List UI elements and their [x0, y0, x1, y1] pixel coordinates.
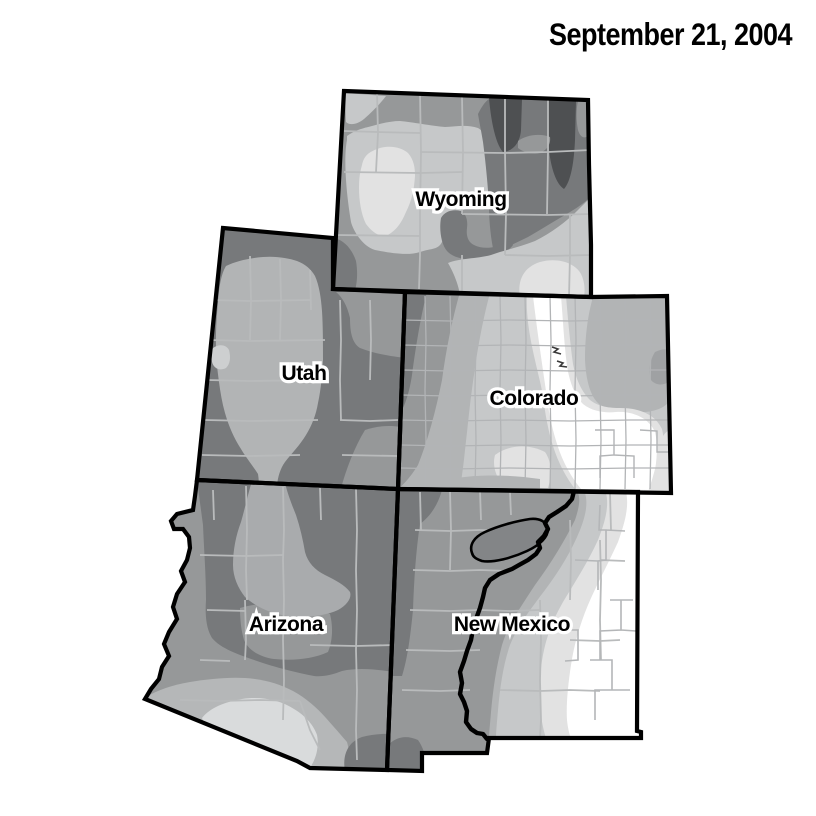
- svg-text:September 21, 2004: September 21, 2004: [549, 18, 793, 52]
- svg-text:New Mexico: New Mexico: [454, 613, 570, 636]
- svg-text:Arizona: Arizona: [249, 613, 324, 636]
- svg-text:Colorado: Colorado: [490, 387, 579, 410]
- svg-text:Utah: Utah: [281, 362, 326, 385]
- svg-text:Wyoming: Wyoming: [415, 188, 506, 211]
